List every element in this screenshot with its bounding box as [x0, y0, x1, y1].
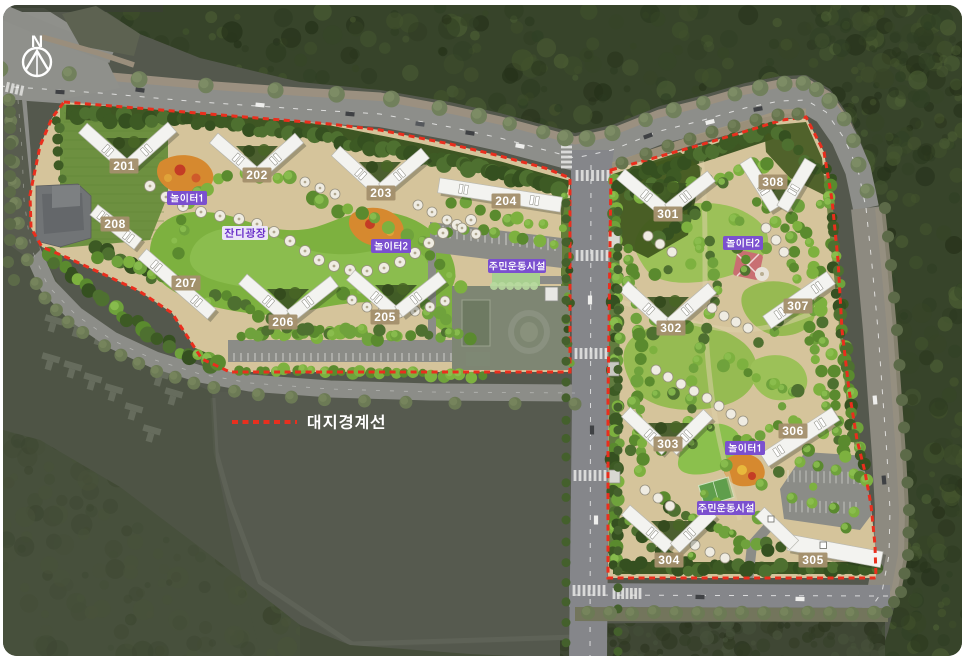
svg-text:208: 208 — [104, 217, 126, 231]
svg-text:307: 307 — [787, 299, 809, 313]
svg-text:301: 301 — [657, 207, 679, 221]
svg-text:308: 308 — [762, 175, 784, 189]
svg-text:201: 201 — [113, 159, 135, 173]
svg-text:207: 207 — [175, 276, 197, 290]
svg-text:305: 305 — [802, 553, 824, 567]
svg-text:203: 203 — [370, 186, 392, 200]
svg-text:306: 306 — [782, 424, 804, 438]
svg-text:302: 302 — [660, 321, 682, 335]
svg-text:204: 204 — [495, 194, 517, 208]
svg-text:206: 206 — [272, 315, 294, 329]
svg-text:304: 304 — [658, 553, 680, 567]
svg-text:303: 303 — [657, 437, 679, 451]
svg-text:205: 205 — [374, 310, 396, 324]
svg-text:202: 202 — [246, 168, 268, 182]
